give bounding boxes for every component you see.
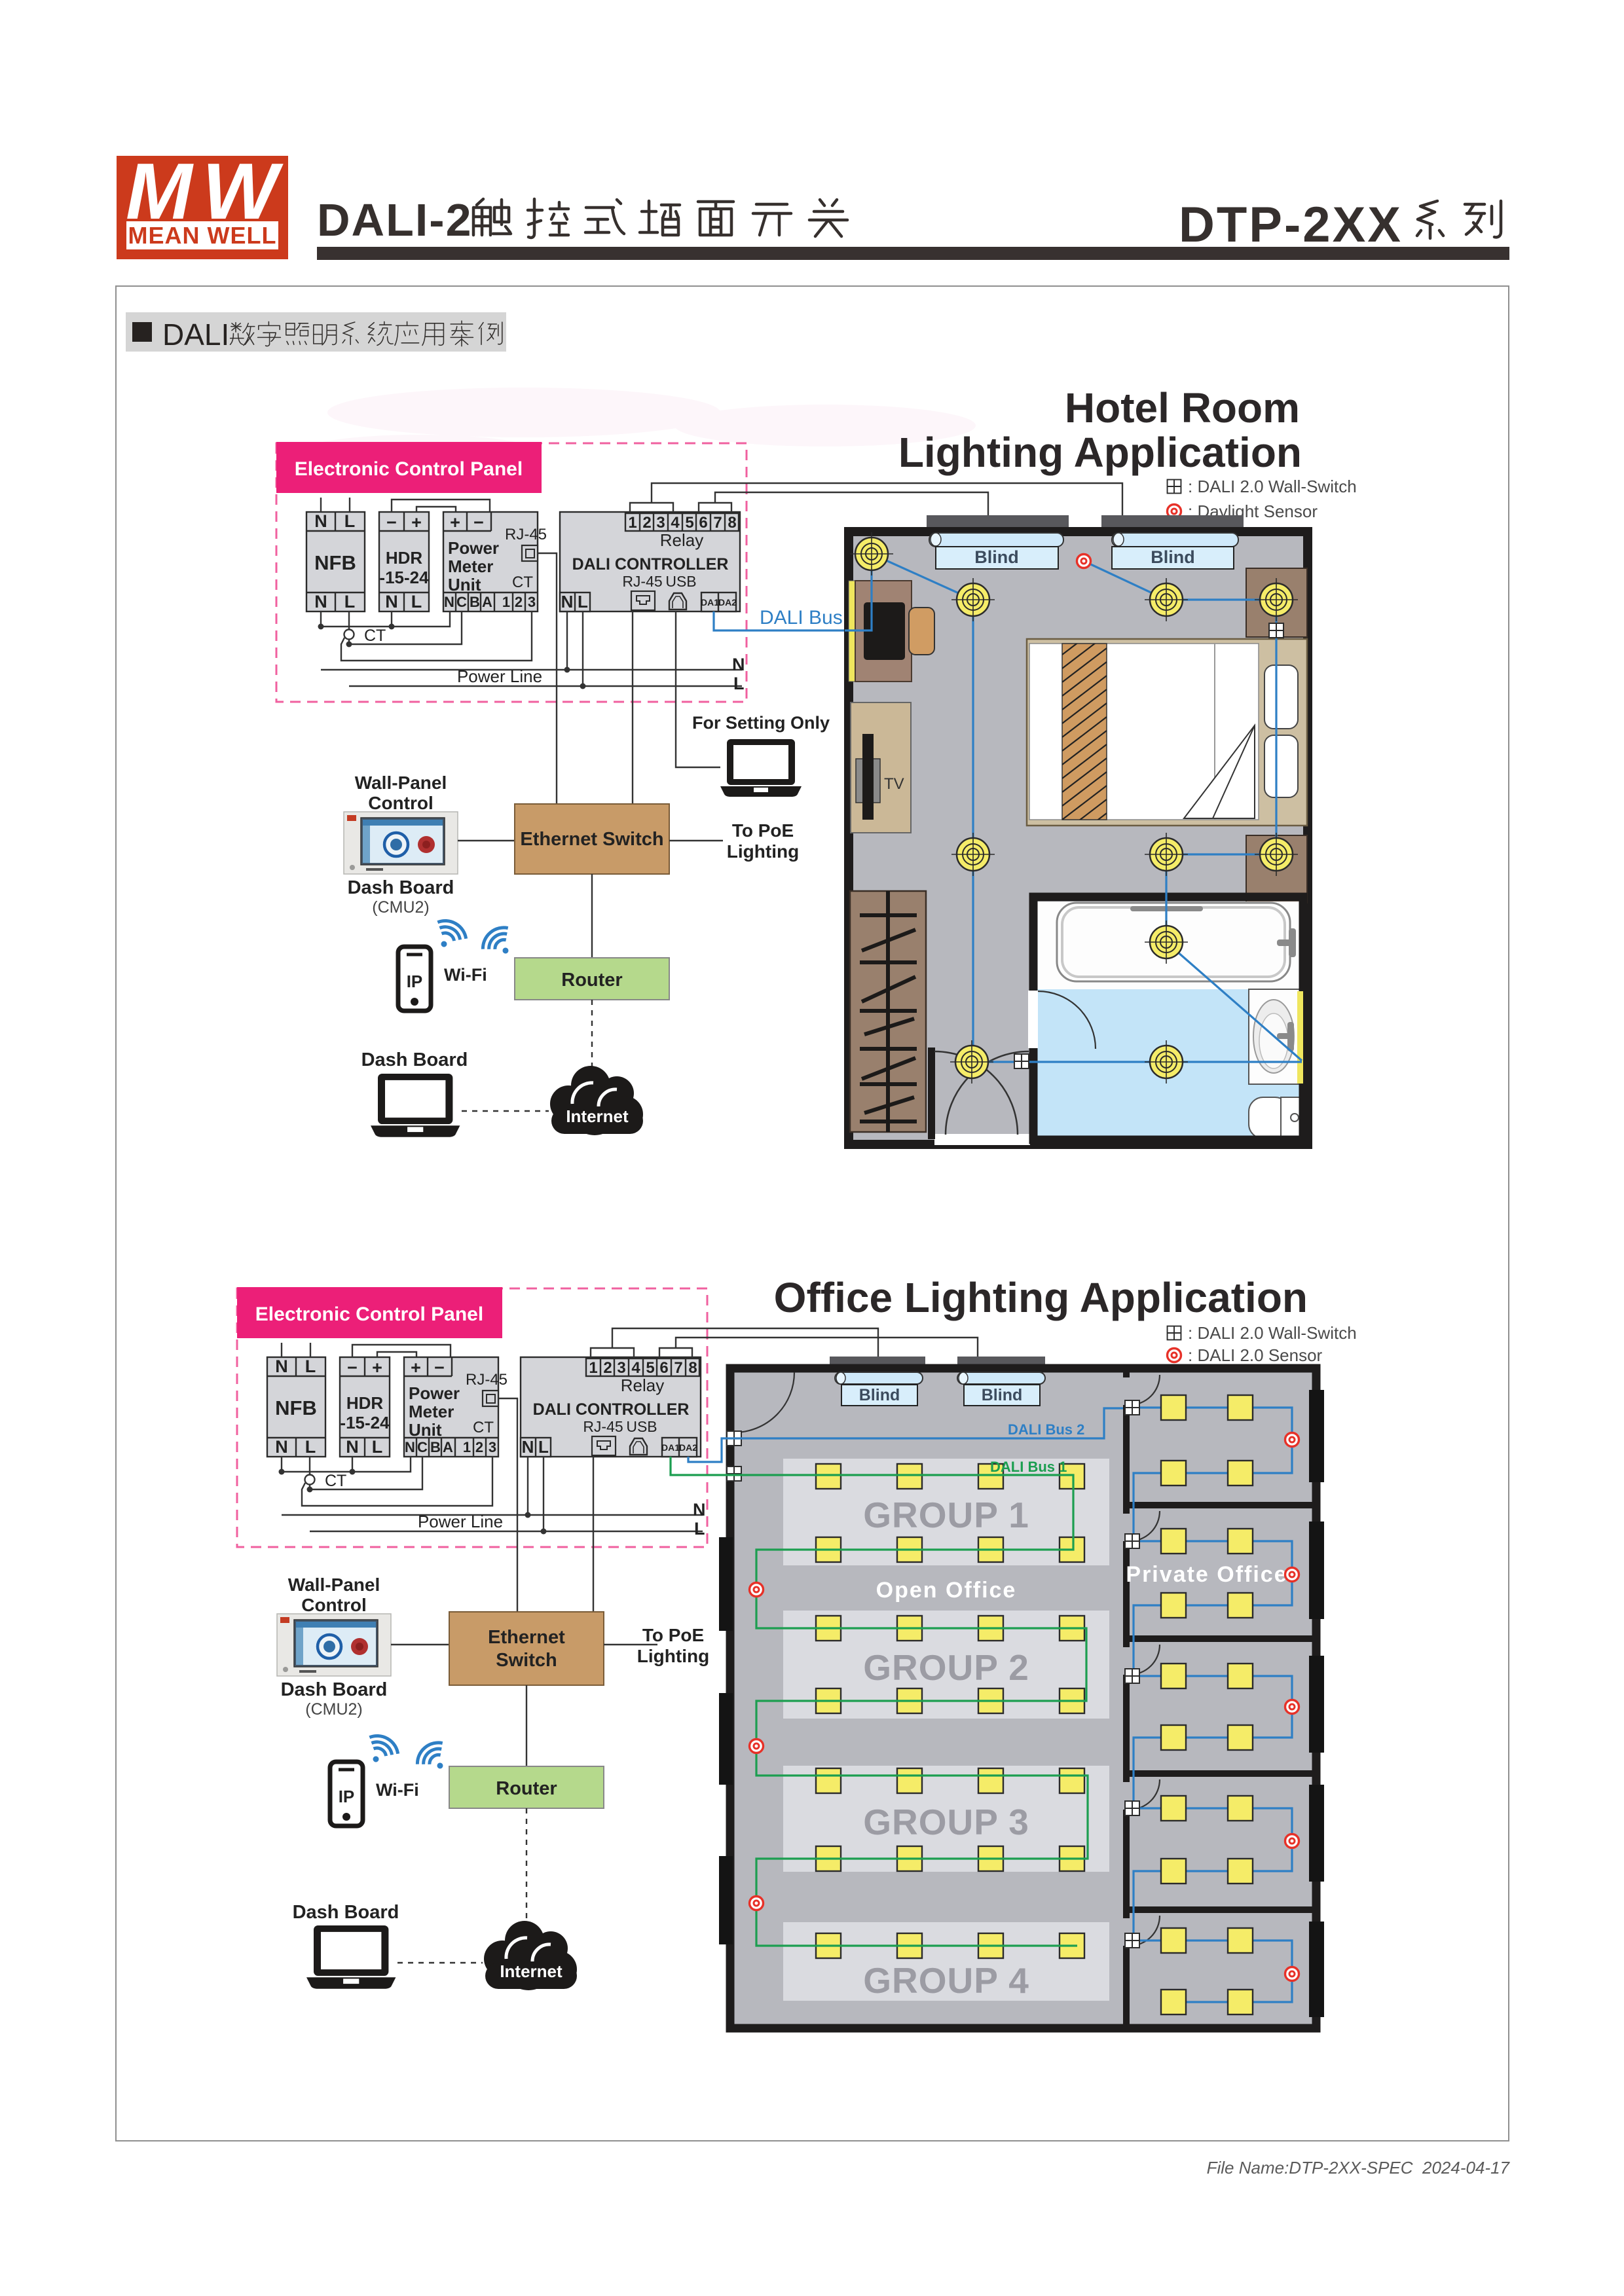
svg-text:GROUP 4: GROUP 4 xyxy=(863,1960,1029,2001)
svg-text:GROUP 2: GROUP 2 xyxy=(863,1647,1029,1688)
svg-text:Internet: Internet xyxy=(566,1106,629,1126)
svg-text:GROUP 3: GROUP 3 xyxy=(863,1802,1029,1842)
svg-text:IP: IP xyxy=(339,1787,355,1806)
svg-text:Control: Control xyxy=(368,793,434,813)
svg-text:GROUP 1: GROUP 1 xyxy=(863,1495,1029,1535)
svg-text:Wi-Fi: Wi-Fi xyxy=(444,965,487,985)
svg-text:Dash Board: Dash Board xyxy=(281,1679,388,1700)
svg-text:Dash Board: Dash Board xyxy=(361,1049,468,1070)
svg-text:: DALI 2.0 Sensor: : DALI 2.0 Sensor xyxy=(1188,1345,1323,1365)
svg-text:Lighting Application: Lighting Application xyxy=(898,429,1302,476)
svg-text:Switch: Switch xyxy=(496,1650,557,1671)
svg-text:Dash Board: Dash Board xyxy=(348,877,454,898)
svg-text:Open Office: Open Office xyxy=(876,1578,1017,1603)
svg-text:TV: TV xyxy=(884,775,904,793)
svg-text:: DALI 2.0 Wall-Switch: : DALI 2.0 Wall-Switch xyxy=(1188,477,1357,496)
svg-text:DALI Bus 1: DALI Bus 1 xyxy=(990,1459,1067,1475)
svg-text:Lighting: Lighting xyxy=(637,1646,709,1666)
svg-text:Blind: Blind xyxy=(982,1386,1023,1404)
svg-text:Wi-Fi: Wi-Fi xyxy=(376,1780,419,1800)
svg-text:To PoE: To PoE xyxy=(642,1625,704,1645)
svg-text:Wall-Panel: Wall-Panel xyxy=(288,1575,380,1595)
svg-text:Blind: Blind xyxy=(1151,547,1195,567)
svg-text:Ethernet: Ethernet xyxy=(488,1627,565,1648)
svg-text:Lighting: Lighting xyxy=(727,841,799,862)
svg-text:Router: Router xyxy=(496,1778,557,1799)
svg-text:(CMU2): (CMU2) xyxy=(372,898,430,917)
svg-text:Hotel Room: Hotel Room xyxy=(1065,384,1300,431)
svg-text:Dash Board: Dash Board xyxy=(293,1902,399,1923)
svg-text:Control: Control xyxy=(301,1595,367,1615)
svg-text:(CMU2): (CMU2) xyxy=(305,1700,363,1719)
svg-text:To PoE: To PoE xyxy=(732,820,794,841)
svg-text:DALI Bus 2: DALI Bus 2 xyxy=(1008,1421,1084,1438)
svg-text:DALI Bus: DALI Bus xyxy=(760,607,843,629)
svg-text:MEAN WELL: MEAN WELL xyxy=(128,222,277,249)
svg-text:Private Office: Private Office xyxy=(1126,1562,1287,1587)
svg-text:: DALI 2.0 Wall-Switch: : DALI 2.0 Wall-Switch xyxy=(1188,1323,1357,1343)
svg-text:Router: Router xyxy=(561,970,622,991)
svg-text:IP: IP xyxy=(407,972,423,991)
svg-text:Internet: Internet xyxy=(500,1961,563,1981)
svg-text:For Setting Only: For Setting Only xyxy=(692,713,830,733)
svg-text:Blind: Blind xyxy=(974,547,1019,567)
svg-text:Office Lighting Application: Office Lighting Application xyxy=(774,1274,1308,1321)
svg-text:Ethernet Switch: Ethernet Switch xyxy=(520,829,663,850)
svg-text:Blind: Blind xyxy=(859,1386,900,1404)
svg-text:Wall-Panel: Wall-Panel xyxy=(355,773,447,793)
